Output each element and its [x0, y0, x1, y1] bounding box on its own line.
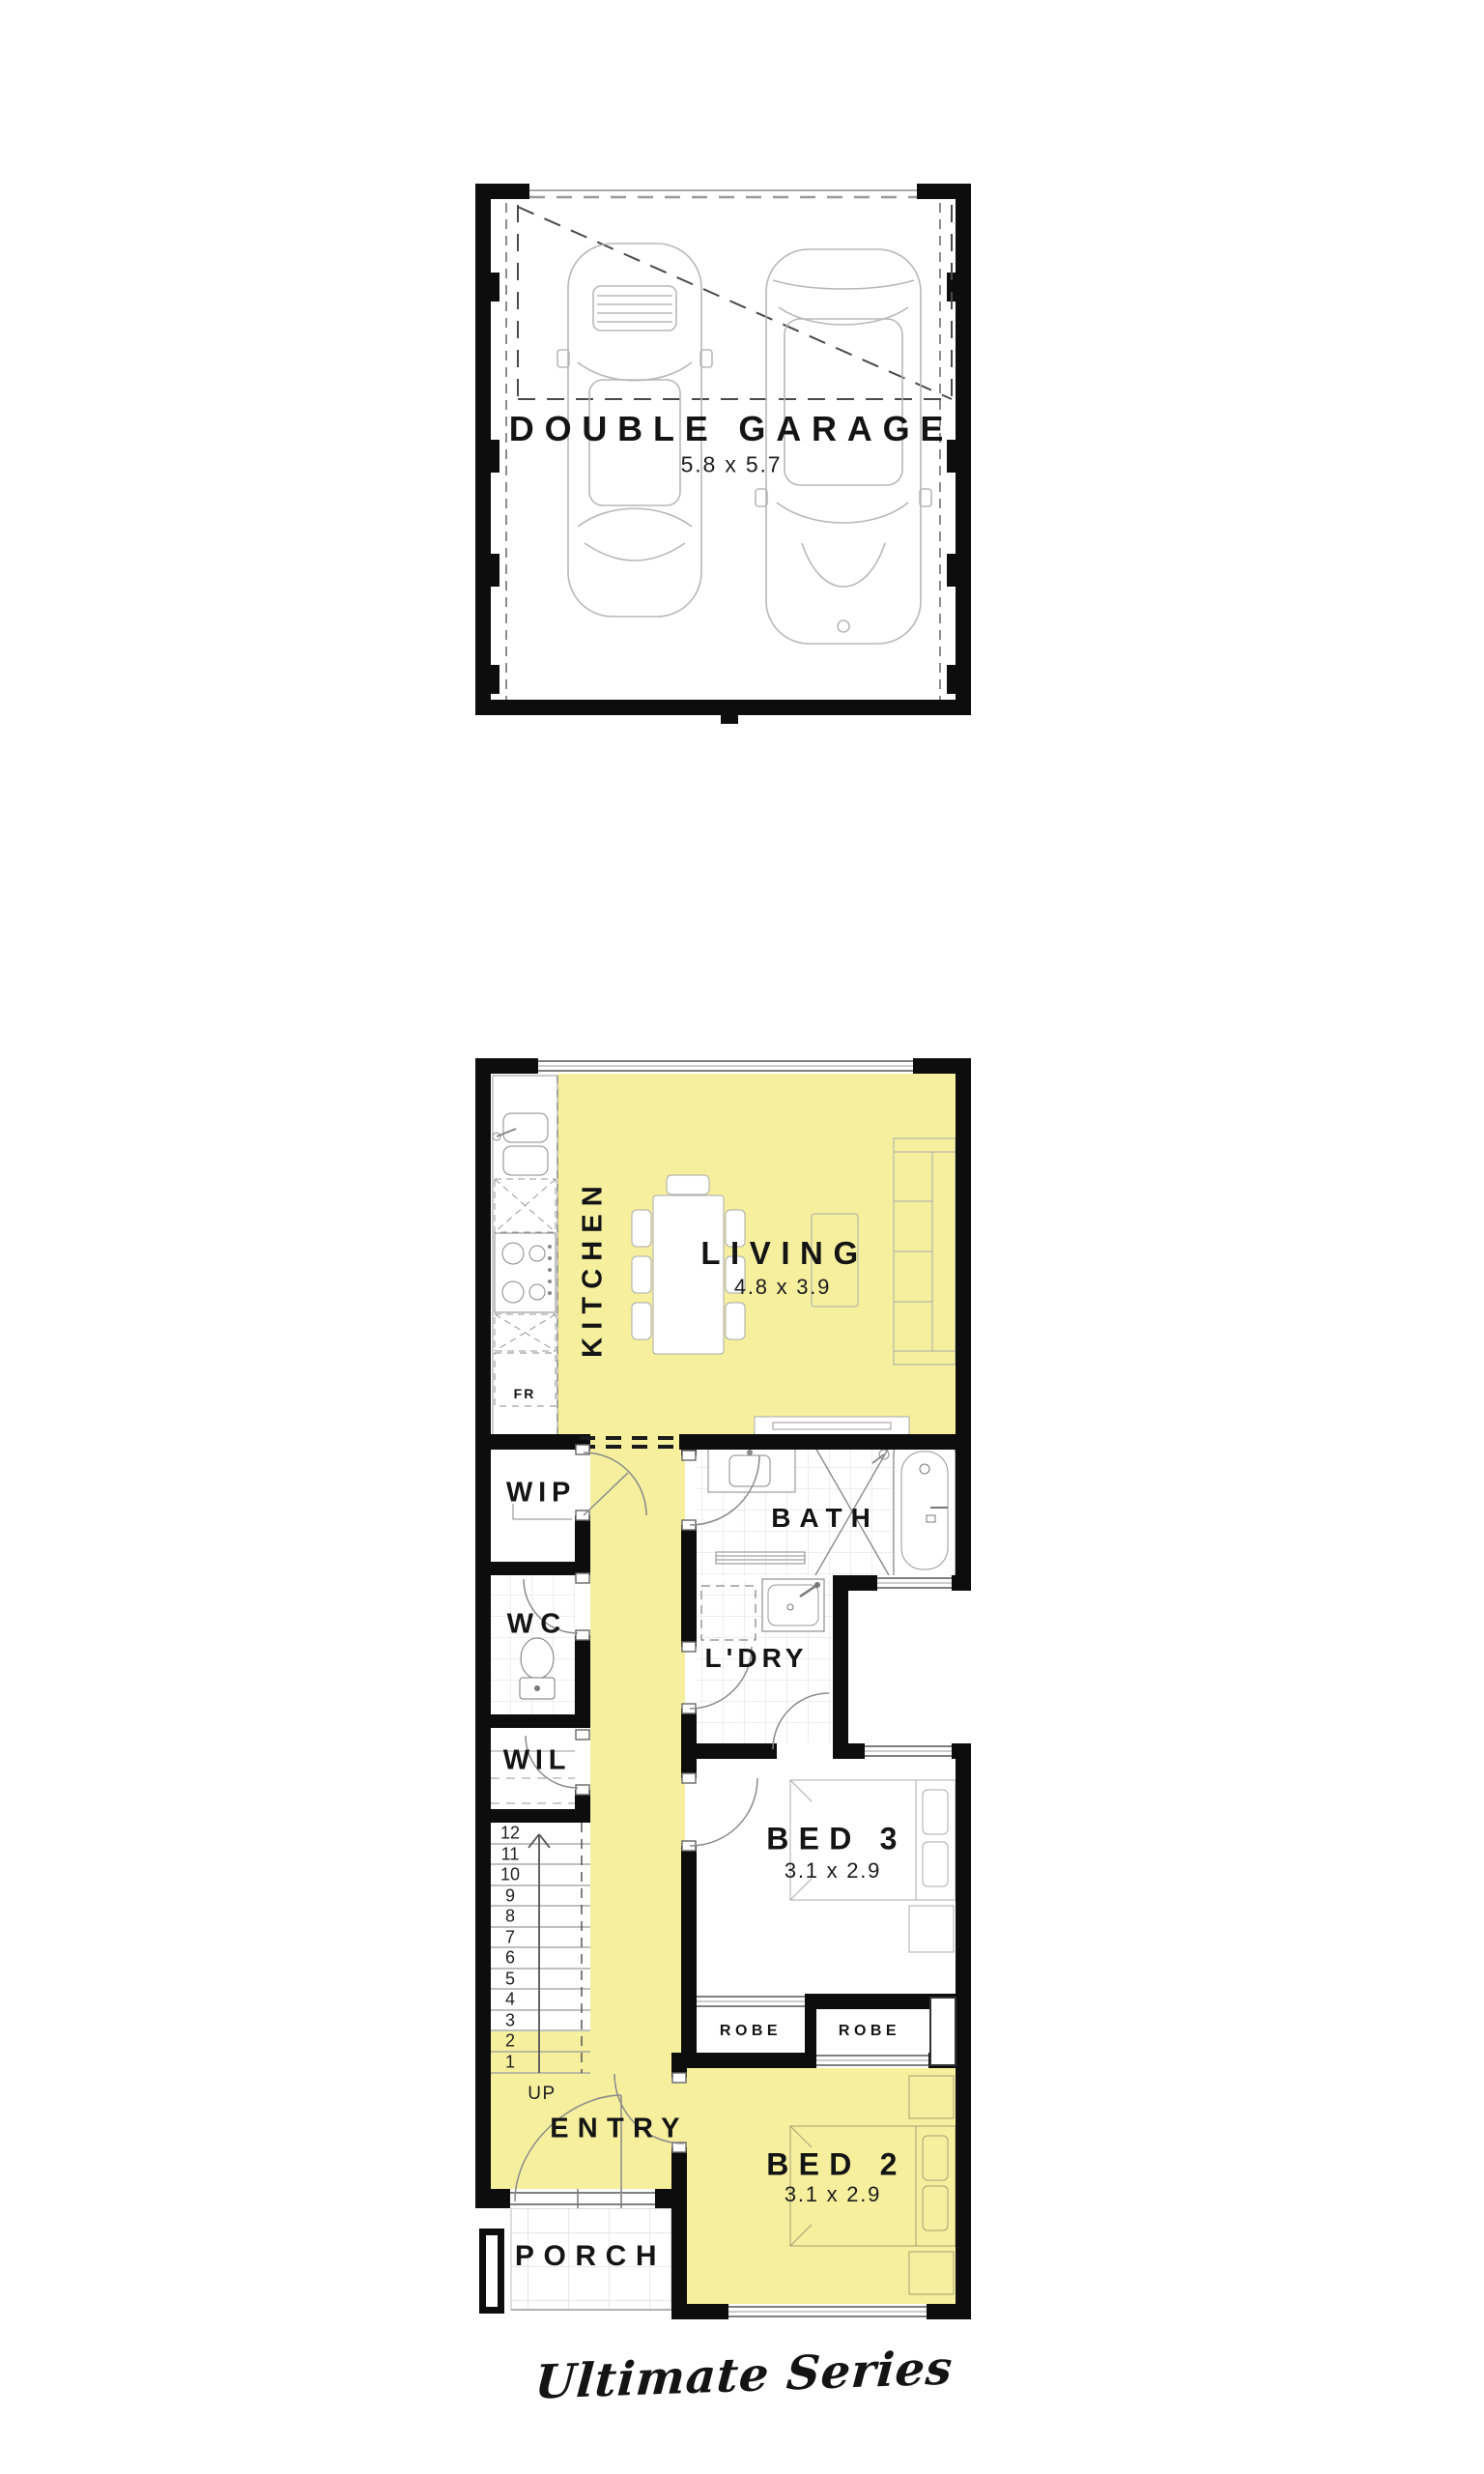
- wip-label: WIP: [506, 1478, 576, 1510]
- cooktop: [495, 1233, 556, 1312]
- living-dims: 4.8 x 3.9: [734, 1275, 831, 1300]
- bed3-door-arc: [690, 1778, 757, 1846]
- bed2-dims: 3.1 x 2.9: [785, 2182, 881, 2207]
- bed3-window: [865, 1743, 952, 1759]
- stair-number: 5: [505, 1970, 515, 1990]
- garage-dims: 5.8 x 5.7: [681, 452, 783, 478]
- stair-number: 9: [505, 1886, 515, 1907]
- stair-number: 3: [505, 2011, 515, 2031]
- stair-number: 4: [505, 1990, 515, 2010]
- laundry-sink: [762, 1579, 824, 1631]
- garage-wall-piers: [491, 273, 956, 694]
- stair-number: 10: [500, 1865, 520, 1885]
- stair-number: 1: [505, 2053, 515, 2073]
- bed2-label: BED 2: [766, 2147, 906, 2183]
- garage-door-swing: [518, 205, 952, 399]
- bed3-dims: 3.1 x 2.9: [785, 1858, 881, 1884]
- robe-right-label: ROBE: [839, 2023, 900, 2040]
- robe-door-panel: [930, 1998, 956, 2065]
- vanity: [708, 1448, 795, 1492]
- garage-label: DOUBLE GARAGE: [509, 409, 954, 449]
- wc-label: WC: [507, 1609, 568, 1641]
- robe-right-track: [816, 2053, 928, 2068]
- stairs-up-label: UP: [528, 2084, 556, 2105]
- toilet: [520, 1638, 555, 1699]
- laundry-label: L'DRY: [704, 1643, 808, 1674]
- garage-door-icon: [529, 190, 917, 197]
- floorplan-page: DOUBLE GARAGE 5.8 x 5.7 LIVING 4.8 x 3.9…: [0, 0, 1484, 2474]
- stair-number: 6: [505, 1948, 515, 1969]
- front-door-sill: [510, 2189, 655, 2208]
- wil-label: WIL: [503, 1745, 572, 1777]
- living-label: LIVING: [700, 1235, 868, 1272]
- stair-number: 8: [505, 1907, 515, 1927]
- stair-number: 12: [500, 1824, 520, 1844]
- bed2-window: [724, 2304, 931, 2319]
- bath-window: [877, 1575, 952, 1591]
- stair-number: 2: [505, 2031, 515, 2052]
- porch-label: PORCH: [515, 2240, 666, 2273]
- robe-left-track: [697, 1994, 805, 2009]
- fridge-label: FR: [514, 1386, 536, 1401]
- kitchen-label: KITCHEN: [578, 1178, 610, 1358]
- living-window: [533, 1058, 918, 1074]
- bathtub: [894, 1444, 956, 1583]
- entry-label: ENTRY: [550, 2114, 689, 2145]
- bath-label: BATH: [771, 1503, 879, 1534]
- bed3-label: BED 3: [766, 1822, 906, 1857]
- stair-number: 7: [505, 1928, 515, 1948]
- robe-left-label: ROBE: [720, 2023, 782, 2040]
- stair-number: 11: [501, 1845, 520, 1865]
- garage-door-nib: [721, 715, 738, 724]
